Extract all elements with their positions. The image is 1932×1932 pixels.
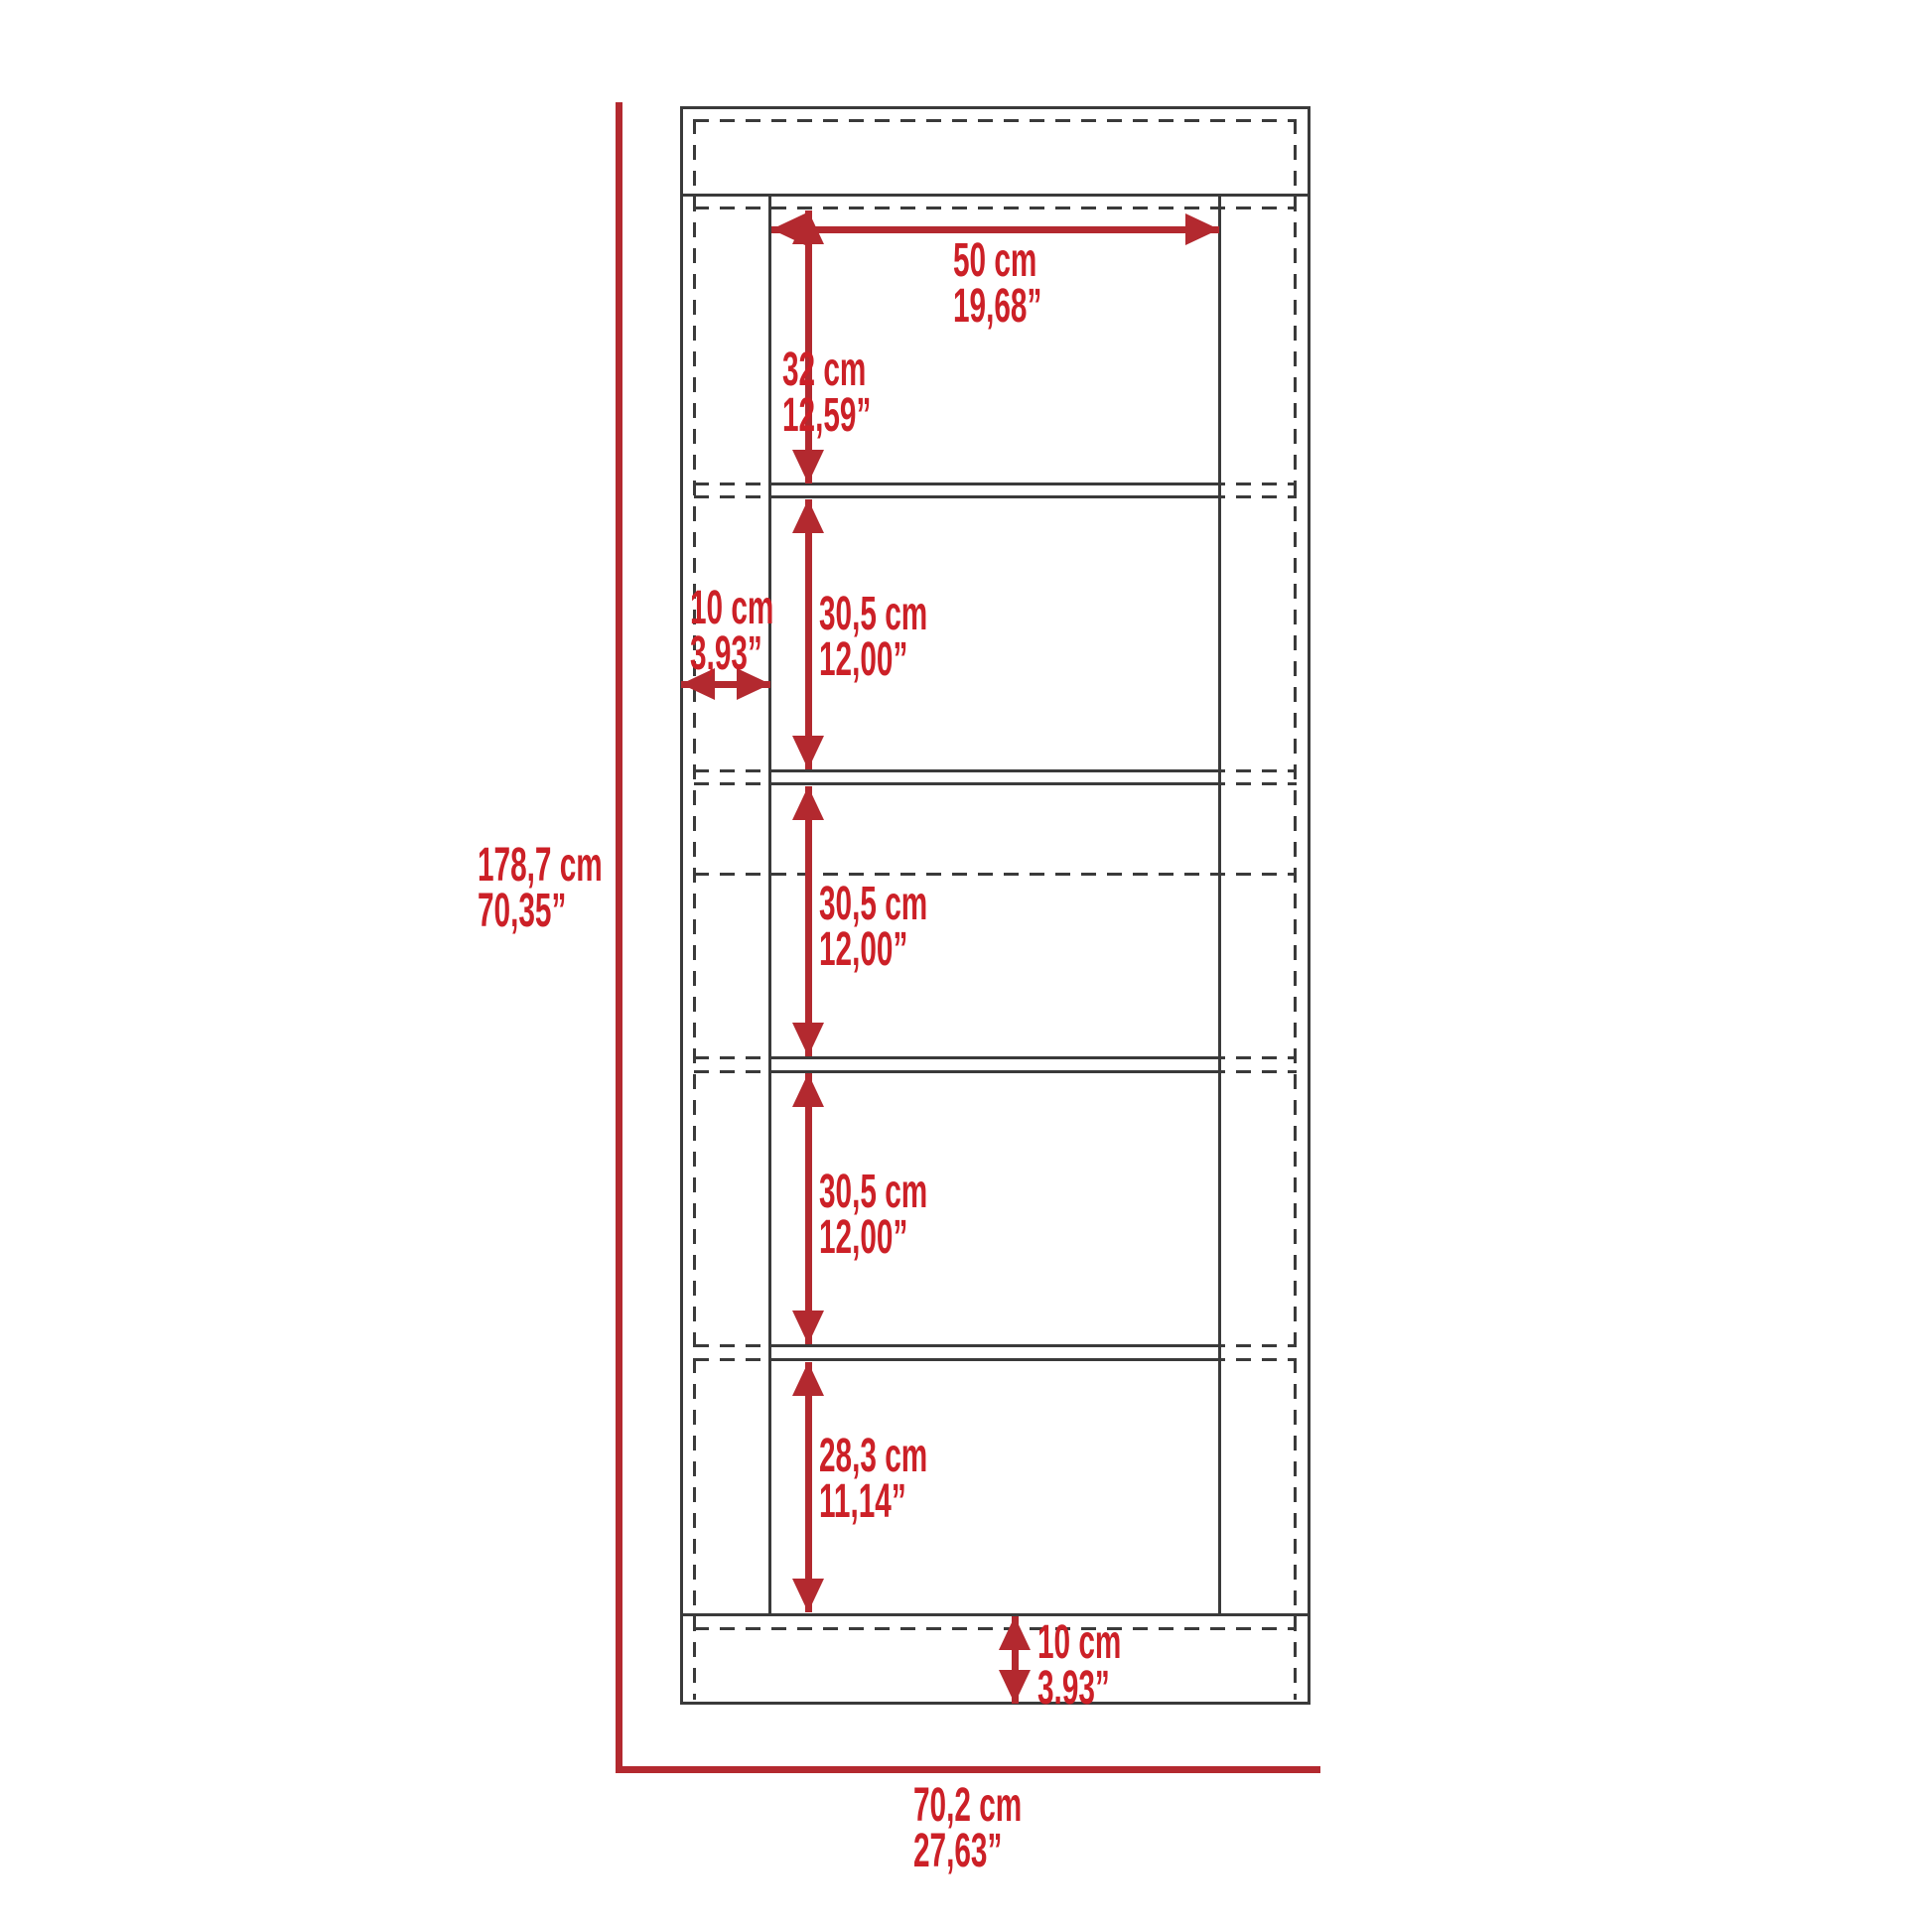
shelf1-top-line	[771, 483, 1218, 485]
width-dimension-line	[616, 1766, 1320, 1773]
right-side-panel-line	[1218, 196, 1221, 1613]
width-total-metric: 70,2 cm	[913, 1783, 1022, 1829]
inner-width-imperial: 19,68”	[953, 284, 1041, 330]
top-rail-bottom-line	[680, 194, 1311, 197]
section2-imperial: 12,00”	[819, 637, 927, 683]
shelf1-bottom-line	[771, 495, 1218, 498]
section2-label: 30,5 cm 12,00”	[819, 592, 927, 683]
section-bottom-label: 28,3 cm 11,14”	[819, 1434, 927, 1525]
base-height-label: 10 cm 3.93”	[1037, 1620, 1121, 1712]
section4-metric: 30,5 cm	[819, 1170, 927, 1215]
width-total-imperial: 27,63”	[913, 1829, 1022, 1874]
inner-width-arrow	[771, 226, 1219, 233]
shelf2-top-line	[771, 769, 1218, 772]
section3-arrow	[805, 786, 812, 1056]
side-thickness-label: 10 cm 3,93”	[690, 586, 773, 677]
section-bottom-metric: 28,3 cm	[819, 1434, 927, 1479]
shelf3-top-line	[771, 1056, 1218, 1059]
section3-metric: 30,5 cm	[819, 882, 927, 927]
side-thickness-imperial: 3,93”	[690, 631, 773, 677]
section4-label: 30,5 cm 12,00”	[819, 1170, 927, 1261]
shelf4-top-line	[771, 1344, 1218, 1347]
dimension-drawing: 50 cm 19,68” 32 cm 12,59” 10 cm 3,93” 30…	[0, 0, 1932, 1932]
side-thickness-metric: 10 cm	[690, 586, 773, 631]
section4-imperial: 12,00”	[819, 1215, 927, 1261]
width-total-label: 70,2 cm 27,63”	[913, 1783, 1022, 1874]
inner-width-label: 50 cm 19,68”	[953, 238, 1041, 330]
side-thickness-arrow	[681, 681, 770, 688]
section-top-label: 32 cm 12,59”	[782, 347, 871, 439]
height-dimension-line	[616, 102, 622, 1773]
shelf3-bottom-line	[771, 1070, 1218, 1073]
cabinet-outline	[680, 106, 1311, 1705]
left-side-panel-line	[768, 196, 771, 1613]
section2-metric: 30,5 cm	[819, 592, 927, 637]
base-height-arrow	[1012, 1616, 1019, 1704]
section3-imperial: 12,00”	[819, 927, 927, 973]
section-top-metric: 32 cm	[782, 347, 871, 393]
shelf4-bottom-line	[771, 1358, 1218, 1361]
base-height-metric: 10 cm	[1037, 1620, 1121, 1666]
height-total-label: 178,7 cm 70,35”	[478, 843, 603, 934]
section-bottom-imperial: 11,14”	[819, 1479, 927, 1525]
shelf2-bottom-line	[771, 782, 1218, 785]
section-top-imperial: 12,59”	[782, 393, 871, 439]
section2-arrow	[805, 499, 812, 769]
height-total-imperial: 70,35”	[478, 889, 603, 934]
section4-arrow	[805, 1073, 812, 1344]
base-height-imperial: 3.93”	[1037, 1666, 1121, 1712]
inner-width-metric: 50 cm	[953, 238, 1041, 284]
section3-label: 30,5 cm 12,00”	[819, 882, 927, 973]
base-top-line	[680, 1613, 1311, 1616]
height-total-metric: 178,7 cm	[478, 843, 603, 889]
section-bottom-arrow	[805, 1362, 812, 1612]
